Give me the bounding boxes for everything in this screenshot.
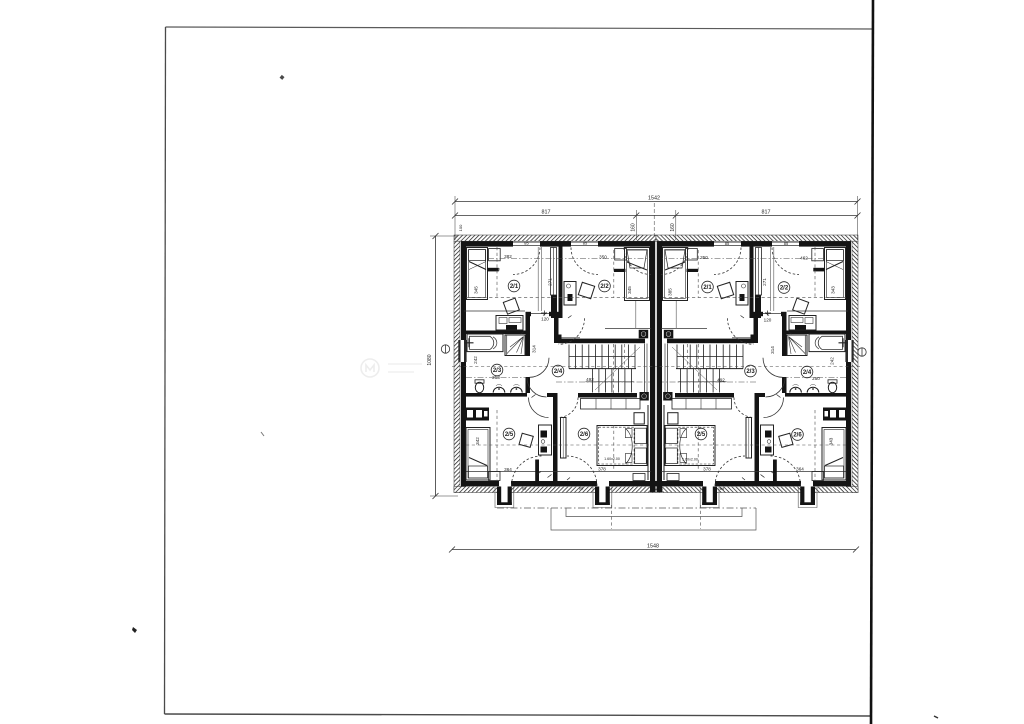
svg-text:2/6: 2/6 <box>793 433 802 439</box>
svg-text:85: 85 <box>524 241 529 246</box>
svg-text:378: 378 <box>703 467 711 472</box>
svg-text:85: 85 <box>725 241 730 246</box>
svg-text:88: 88 <box>659 486 664 491</box>
svg-text:253: 253 <box>492 375 500 380</box>
svg-text:345: 345 <box>474 286 479 294</box>
svg-text:364: 364 <box>796 467 804 472</box>
svg-text:L+160: L+160 <box>490 268 500 272</box>
svg-text:88: 88 <box>720 486 725 491</box>
svg-text:242: 242 <box>830 357 835 365</box>
svg-text:2/6: 2/6 <box>580 432 589 438</box>
svg-text:314: 314 <box>532 345 537 353</box>
svg-text:85: 85 <box>583 241 588 246</box>
svg-text:382: 382 <box>504 254 512 259</box>
svg-text:2/4: 2/4 <box>554 369 563 375</box>
svg-text:342: 342 <box>475 437 480 445</box>
svg-text:492: 492 <box>586 377 594 382</box>
svg-text:385: 385 <box>668 288 673 296</box>
svg-text:250: 250 <box>812 376 820 381</box>
svg-text:350: 350 <box>599 255 607 260</box>
svg-text:L+160: L+160 <box>615 269 625 273</box>
svg-text:100: 100 <box>458 224 463 231</box>
svg-text:2/1: 2/1 <box>703 285 712 291</box>
svg-text:2/5: 2/5 <box>505 432 514 438</box>
svg-text:2/3: 2/3 <box>493 368 502 374</box>
svg-text:120: 120 <box>541 317 549 322</box>
svg-text:2/5: 2/5 <box>697 432 706 438</box>
svg-text:1.60x2.00: 1.60x2.00 <box>604 457 620 461</box>
svg-text:271: 271 <box>548 278 553 286</box>
svg-text:160: 160 <box>670 223 676 232</box>
svg-text:378: 378 <box>598 467 606 472</box>
svg-text:1542: 1542 <box>648 196 660 202</box>
svg-text:88: 88 <box>522 486 527 491</box>
svg-text:364: 364 <box>504 467 512 472</box>
svg-text:343: 343 <box>829 437 834 445</box>
svg-text:350: 350 <box>700 255 708 260</box>
svg-text:2/2: 2/2 <box>780 286 789 292</box>
svg-text:2/2: 2/2 <box>600 284 609 290</box>
svg-text:492: 492 <box>717 378 725 383</box>
svg-text:343: 343 <box>831 286 836 294</box>
svg-text:462: 462 <box>800 256 808 261</box>
svg-text:1080: 1080 <box>427 354 433 365</box>
svg-text:1548: 1548 <box>647 544 659 550</box>
svg-text:88: 88 <box>579 486 584 491</box>
svg-text:242: 242 <box>473 356 478 364</box>
svg-text:314: 314 <box>770 346 775 354</box>
svg-text:160: 160 <box>631 223 637 232</box>
svg-text:817: 817 <box>542 210 551 216</box>
svg-text:1.60x2.00: 1.60x2.00 <box>682 457 698 461</box>
svg-text:271: 271 <box>762 278 767 286</box>
svg-text:2/3: 2/3 <box>746 369 755 375</box>
svg-text:120: 120 <box>764 318 772 323</box>
svg-text:2/1: 2/1 <box>510 284 519 290</box>
svg-text:817: 817 <box>762 210 771 216</box>
svg-text:85: 85 <box>784 241 789 246</box>
svg-text:2/4: 2/4 <box>803 370 812 376</box>
svg-text:345: 345 <box>627 286 632 294</box>
